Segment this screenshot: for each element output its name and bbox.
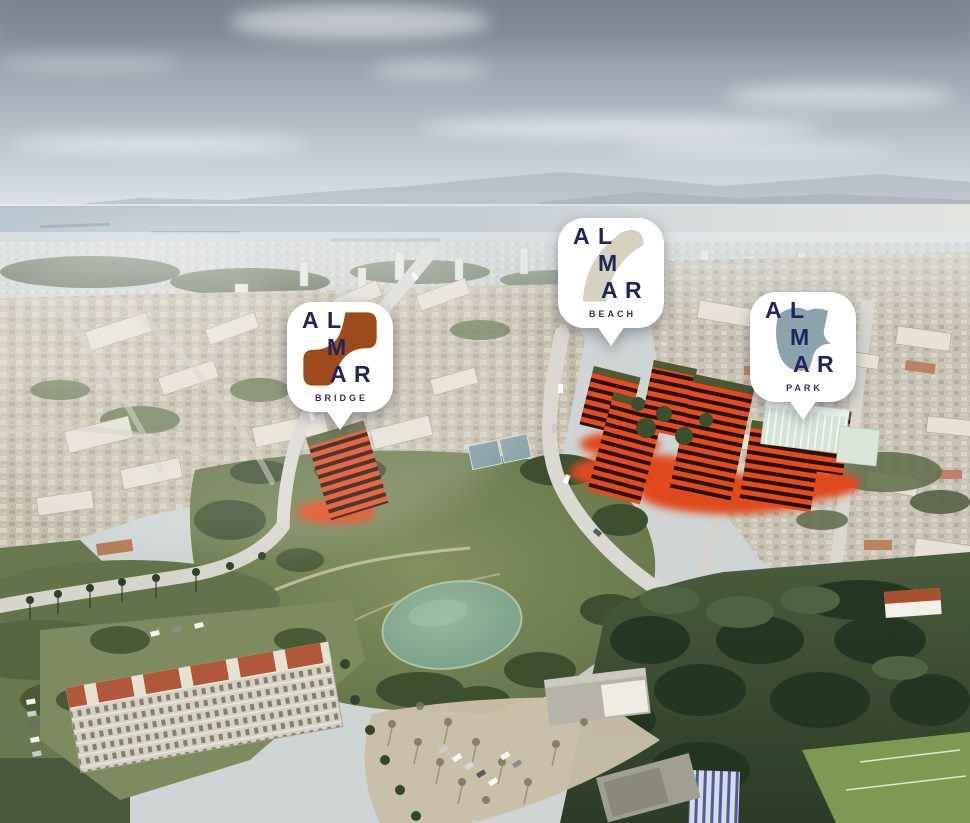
logo-letter: M <box>327 336 346 359</box>
logo-letter: R <box>354 363 371 386</box>
almar-park-logo: A L M A R <box>764 300 842 378</box>
pin-balloon: A L M A R BRIDGE <box>287 302 393 412</box>
logo-letter: A <box>601 279 618 302</box>
logo-letter: L <box>598 225 612 248</box>
pin-tail <box>784 393 822 420</box>
aerial-site-map: A L M A R BRIDGE A L M A R BEACH A L <box>0 0 970 823</box>
map-pin-almar-beach[interactable]: A L M A R BEACH <box>558 218 664 346</box>
mint-building-small <box>836 426 880 466</box>
logo-letter: L <box>327 309 341 332</box>
pin-balloon: A L M A R PARK <box>750 292 856 402</box>
pin-tail <box>592 319 630 346</box>
pin-balloon: A L M A R BEACH <box>558 218 664 328</box>
map-pin-almar-bridge[interactable]: A L M A R BRIDGE <box>287 302 393 430</box>
logo-letter: A <box>573 225 590 248</box>
logo-letter: M <box>790 326 809 349</box>
pin-label-bridge: BRIDGE <box>287 393 393 403</box>
pin-label-beach: BEACH <box>558 309 664 319</box>
white-house <box>884 588 942 618</box>
pin-label-park: PARK <box>750 383 856 393</box>
logo-letter: L <box>790 299 804 322</box>
logo-letter: A <box>793 353 810 376</box>
logo-letter: R <box>817 353 834 376</box>
map-pin-almar-park[interactable]: A L M A R PARK <box>750 292 856 420</box>
almar-bridge-logo: A L M A R <box>301 310 379 388</box>
logo-letter: R <box>625 279 642 302</box>
logo-letter: A <box>302 309 319 332</box>
almar-beach-logo: A L M A R <box>572 226 650 304</box>
logo-letter: A <box>330 363 347 386</box>
pin-tail <box>321 403 359 430</box>
logo-letter: M <box>598 252 617 275</box>
logo-letter: A <box>765 299 782 322</box>
